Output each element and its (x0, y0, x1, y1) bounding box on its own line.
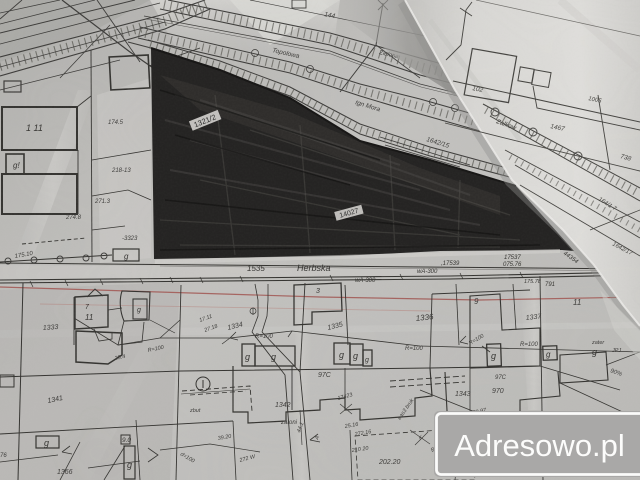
svg-text:Adresowo.pl: Adresowo.pl (454, 428, 625, 463)
